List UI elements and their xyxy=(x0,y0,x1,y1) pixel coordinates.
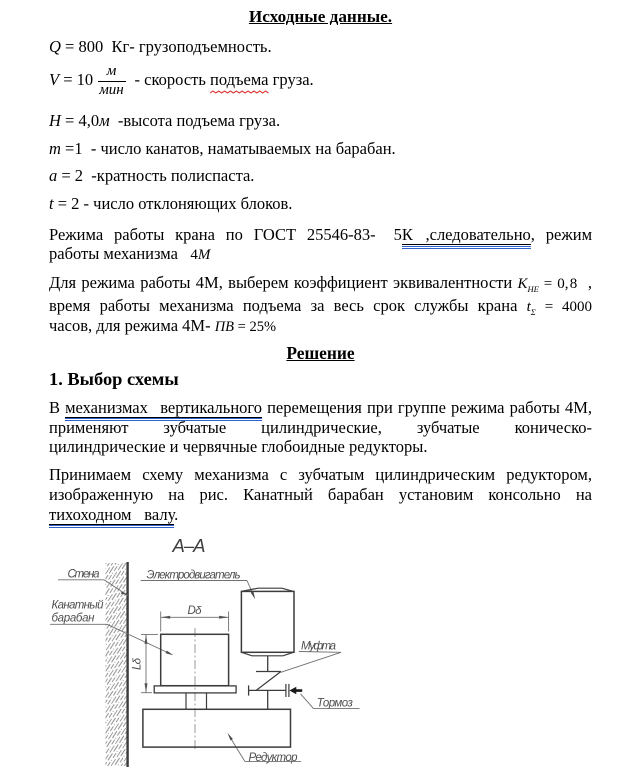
svg-text:барабан: барабан xyxy=(52,613,96,625)
svg-text:Стена: Стена xyxy=(68,569,100,581)
svg-text:Тормоз: Тормоз xyxy=(317,698,354,710)
svg-text:А–А: А–А xyxy=(172,535,206,556)
svg-text:Электродвигатель: Электродвигатель xyxy=(147,570,241,582)
svg-text:Муфта: Муфта xyxy=(301,641,336,653)
svg-text:Канатный: Канатный xyxy=(52,600,105,612)
svg-text:Lδ: Lδ xyxy=(132,657,144,670)
svg-text:Dδ: Dδ xyxy=(188,605,203,617)
svg-text:Редуктор: Редуктор xyxy=(249,752,299,764)
